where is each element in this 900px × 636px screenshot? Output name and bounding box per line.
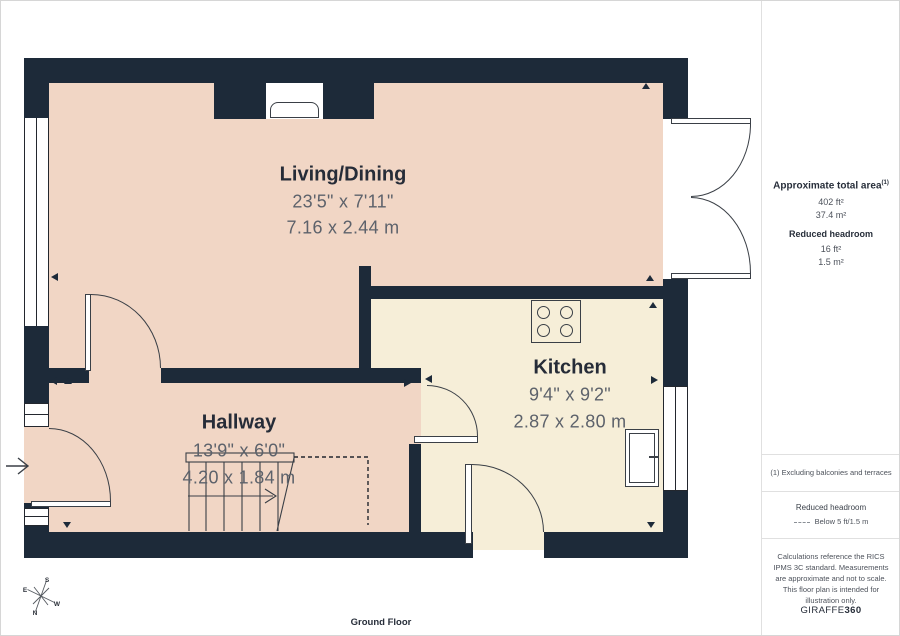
hallway-metric: 4.20 x 1.84 m bbox=[183, 468, 296, 489]
total-area-heading: Approximate total area(1) bbox=[763, 180, 899, 191]
area-footnote: (1) Excluding balconies and terraces bbox=[763, 468, 899, 477]
reduced-headroom-label: Reduced headroom bbox=[763, 229, 899, 239]
compass-e: E bbox=[23, 587, 28, 594]
disclaimer-text: Calculations reference the RICS IPMS 3C … bbox=[771, 552, 891, 606]
compass-icon: S E W N bbox=[23, 577, 61, 617]
total-area-imperial: 402 ft² bbox=[763, 197, 899, 207]
total-area-label: Approximate total area bbox=[773, 180, 881, 191]
compass-n: N bbox=[33, 610, 38, 617]
stairs-direction-arrow bbox=[188, 489, 276, 503]
brand-logo: GIRAFFE360 bbox=[763, 605, 899, 616]
kitchen-imperial: 9'4" x 9'2" bbox=[529, 385, 611, 406]
legend-item: Below 5 ft/1.5 m bbox=[815, 517, 869, 526]
floorplan-page: S E W N Living/Dining 23'5" x 7'11" 7.16… bbox=[0, 0, 900, 636]
compass-w: W bbox=[54, 601, 61, 608]
sidebar-divider-1 bbox=[762, 454, 900, 455]
total-area-metric: 37.4 m² bbox=[763, 210, 899, 220]
plan-annotations: S E W N bbox=[1, 1, 761, 636]
compass-s: S bbox=[45, 577, 50, 584]
sidebar-divider-2 bbox=[762, 491, 900, 492]
legend-row: Below 5 ft/1.5 m bbox=[763, 517, 899, 526]
legend-title: Reduced headroom bbox=[763, 503, 899, 512]
brand-name: GIRAFFE bbox=[800, 605, 844, 616]
reduced-headroom-boundary bbox=[294, 457, 368, 525]
kitchen-metric: 2.87 x 2.80 m bbox=[514, 412, 627, 433]
total-area-footnote-ref: (1) bbox=[882, 180, 889, 186]
sidebar-divider-3 bbox=[762, 538, 900, 539]
living-room-metric: 7.16 x 2.44 m bbox=[287, 218, 400, 239]
kitchen-label: Kitchen bbox=[533, 357, 606, 380]
sidebar-divider-vertical bbox=[761, 1, 762, 636]
reduced-headroom-metric: 1.5 m² bbox=[763, 257, 899, 267]
staircase bbox=[186, 453, 294, 531]
entry-arrow-icon bbox=[6, 458, 28, 474]
floor-name: Ground Floor bbox=[1, 617, 761, 628]
reduced-headroom-imperial: 16 ft² bbox=[763, 244, 899, 254]
dashed-line-icon bbox=[794, 522, 810, 523]
living-room-imperial: 23'5" x 7'11" bbox=[292, 192, 393, 213]
measure-arrows bbox=[50, 83, 658, 528]
brand-suffix: 360 bbox=[844, 605, 861, 616]
living-room-label: Living/Dining bbox=[280, 164, 407, 187]
hallway-label: Hallway bbox=[202, 412, 276, 435]
hallway-imperial: 13'9" x 6'0" bbox=[193, 441, 285, 462]
